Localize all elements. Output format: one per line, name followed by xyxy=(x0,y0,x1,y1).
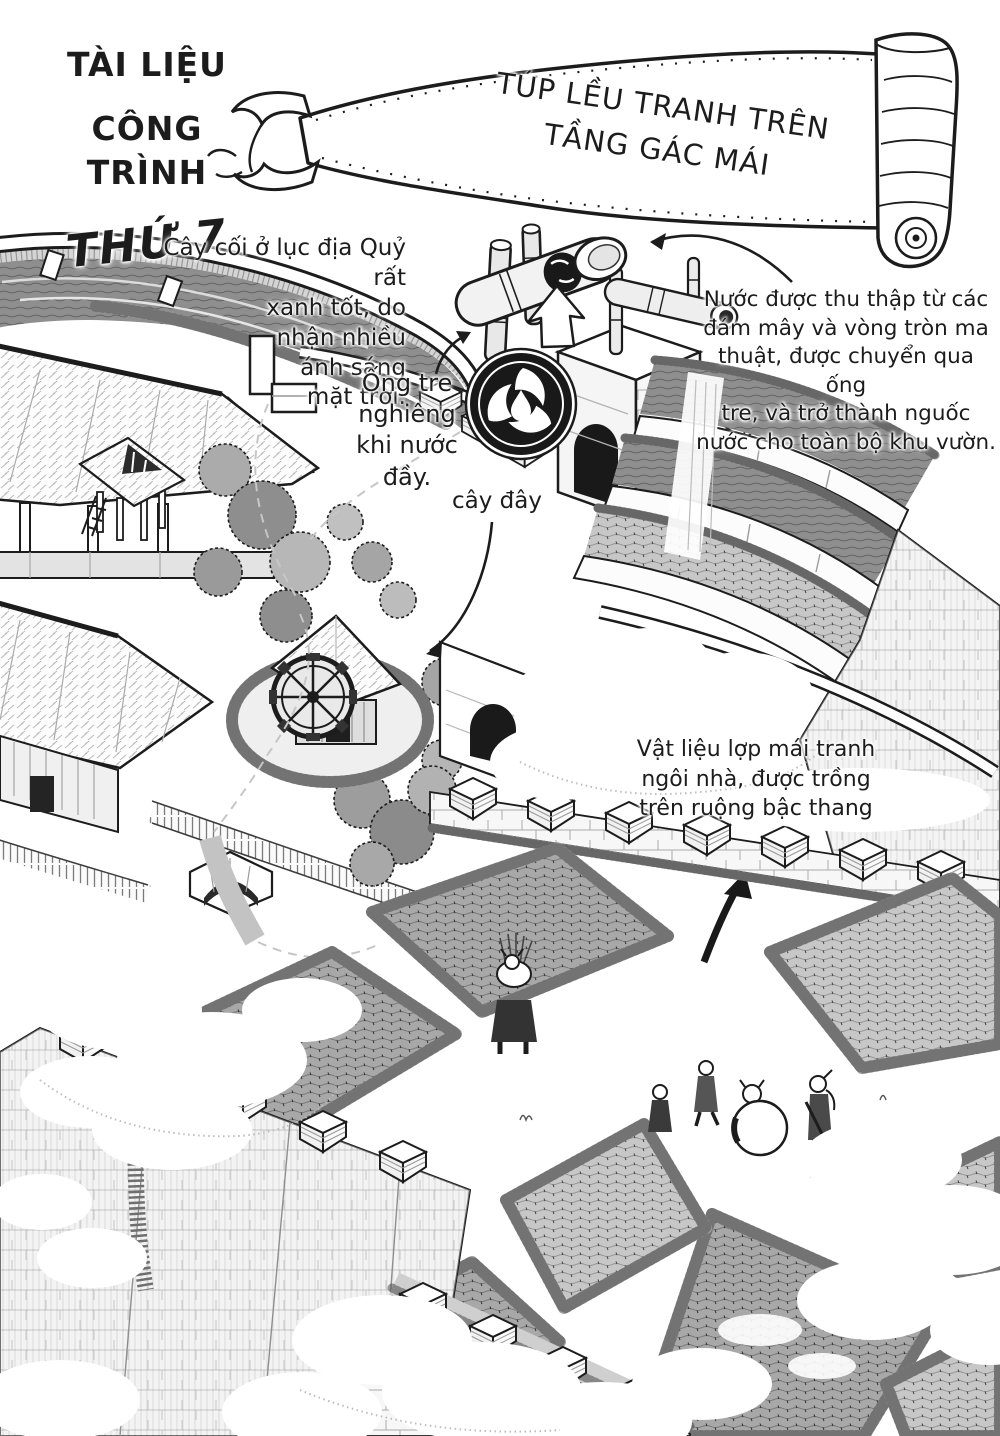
magic-circle-icon xyxy=(466,349,576,459)
annotation-thatch-material: Vật liệu lợp mái tranh ngôi nhà, được tr… xyxy=(628,735,884,824)
annotation-bamboo-tilt: Ống tre nghiêng khi nước đầy. xyxy=(350,368,464,493)
curved-arrow-right-icon xyxy=(650,233,792,282)
water-wheel xyxy=(269,653,357,741)
doc-title-line1: TÀI LIỆU xyxy=(30,43,264,88)
scroll-roll-right xyxy=(876,34,957,267)
manga-page: TÀI LIỆU CÔNG TRÌNH THỨ 7 TÚP LỀU TRANH … xyxy=(0,0,1000,1436)
annotation-water-source: Nước được thu thập từ các đám mây và vòn… xyxy=(696,286,996,458)
doc-title-line2: CÔNG TRÌNH xyxy=(30,107,264,196)
annotation-plant-here: cây đây xyxy=(452,487,542,517)
watermill xyxy=(232,616,428,782)
thatch-up-arrow-icon xyxy=(704,872,752,962)
thatched-house-lower xyxy=(0,598,212,832)
plant-pointer-arrow-icon xyxy=(426,522,492,658)
